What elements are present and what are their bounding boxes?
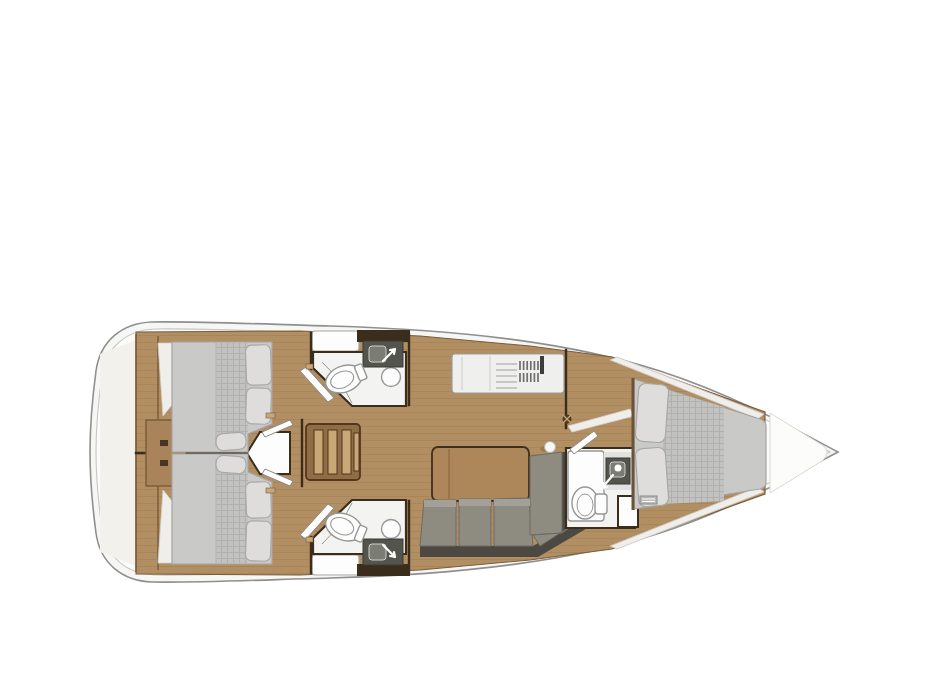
salon-table xyxy=(432,447,529,501)
step xyxy=(314,430,323,474)
stove-handle xyxy=(540,356,544,374)
sofa-cushion xyxy=(530,452,562,535)
v-berth-blanket xyxy=(664,389,724,504)
step xyxy=(328,430,337,474)
galley-counter xyxy=(452,354,564,393)
stern-platform xyxy=(100,340,136,566)
anchor-locker xyxy=(770,413,827,493)
cushion-highlight xyxy=(424,500,456,507)
floor-plan-drawing: Sailing yacht interior floor plan, top v… xyxy=(0,0,928,696)
step xyxy=(342,430,351,474)
v-berth-pillow xyxy=(635,383,669,443)
mast-foot xyxy=(563,415,572,424)
sink-tap xyxy=(615,465,622,472)
step xyxy=(354,433,359,471)
cushion-highlight xyxy=(494,499,530,506)
bow-locker xyxy=(770,413,827,493)
bed-vent xyxy=(640,496,657,504)
cushion-highlight xyxy=(459,499,491,506)
yacht-floor-plan: Sailing yacht interior floor plan, top v… xyxy=(0,0,928,696)
sofa-cushion xyxy=(459,499,491,546)
companionway xyxy=(302,420,360,486)
